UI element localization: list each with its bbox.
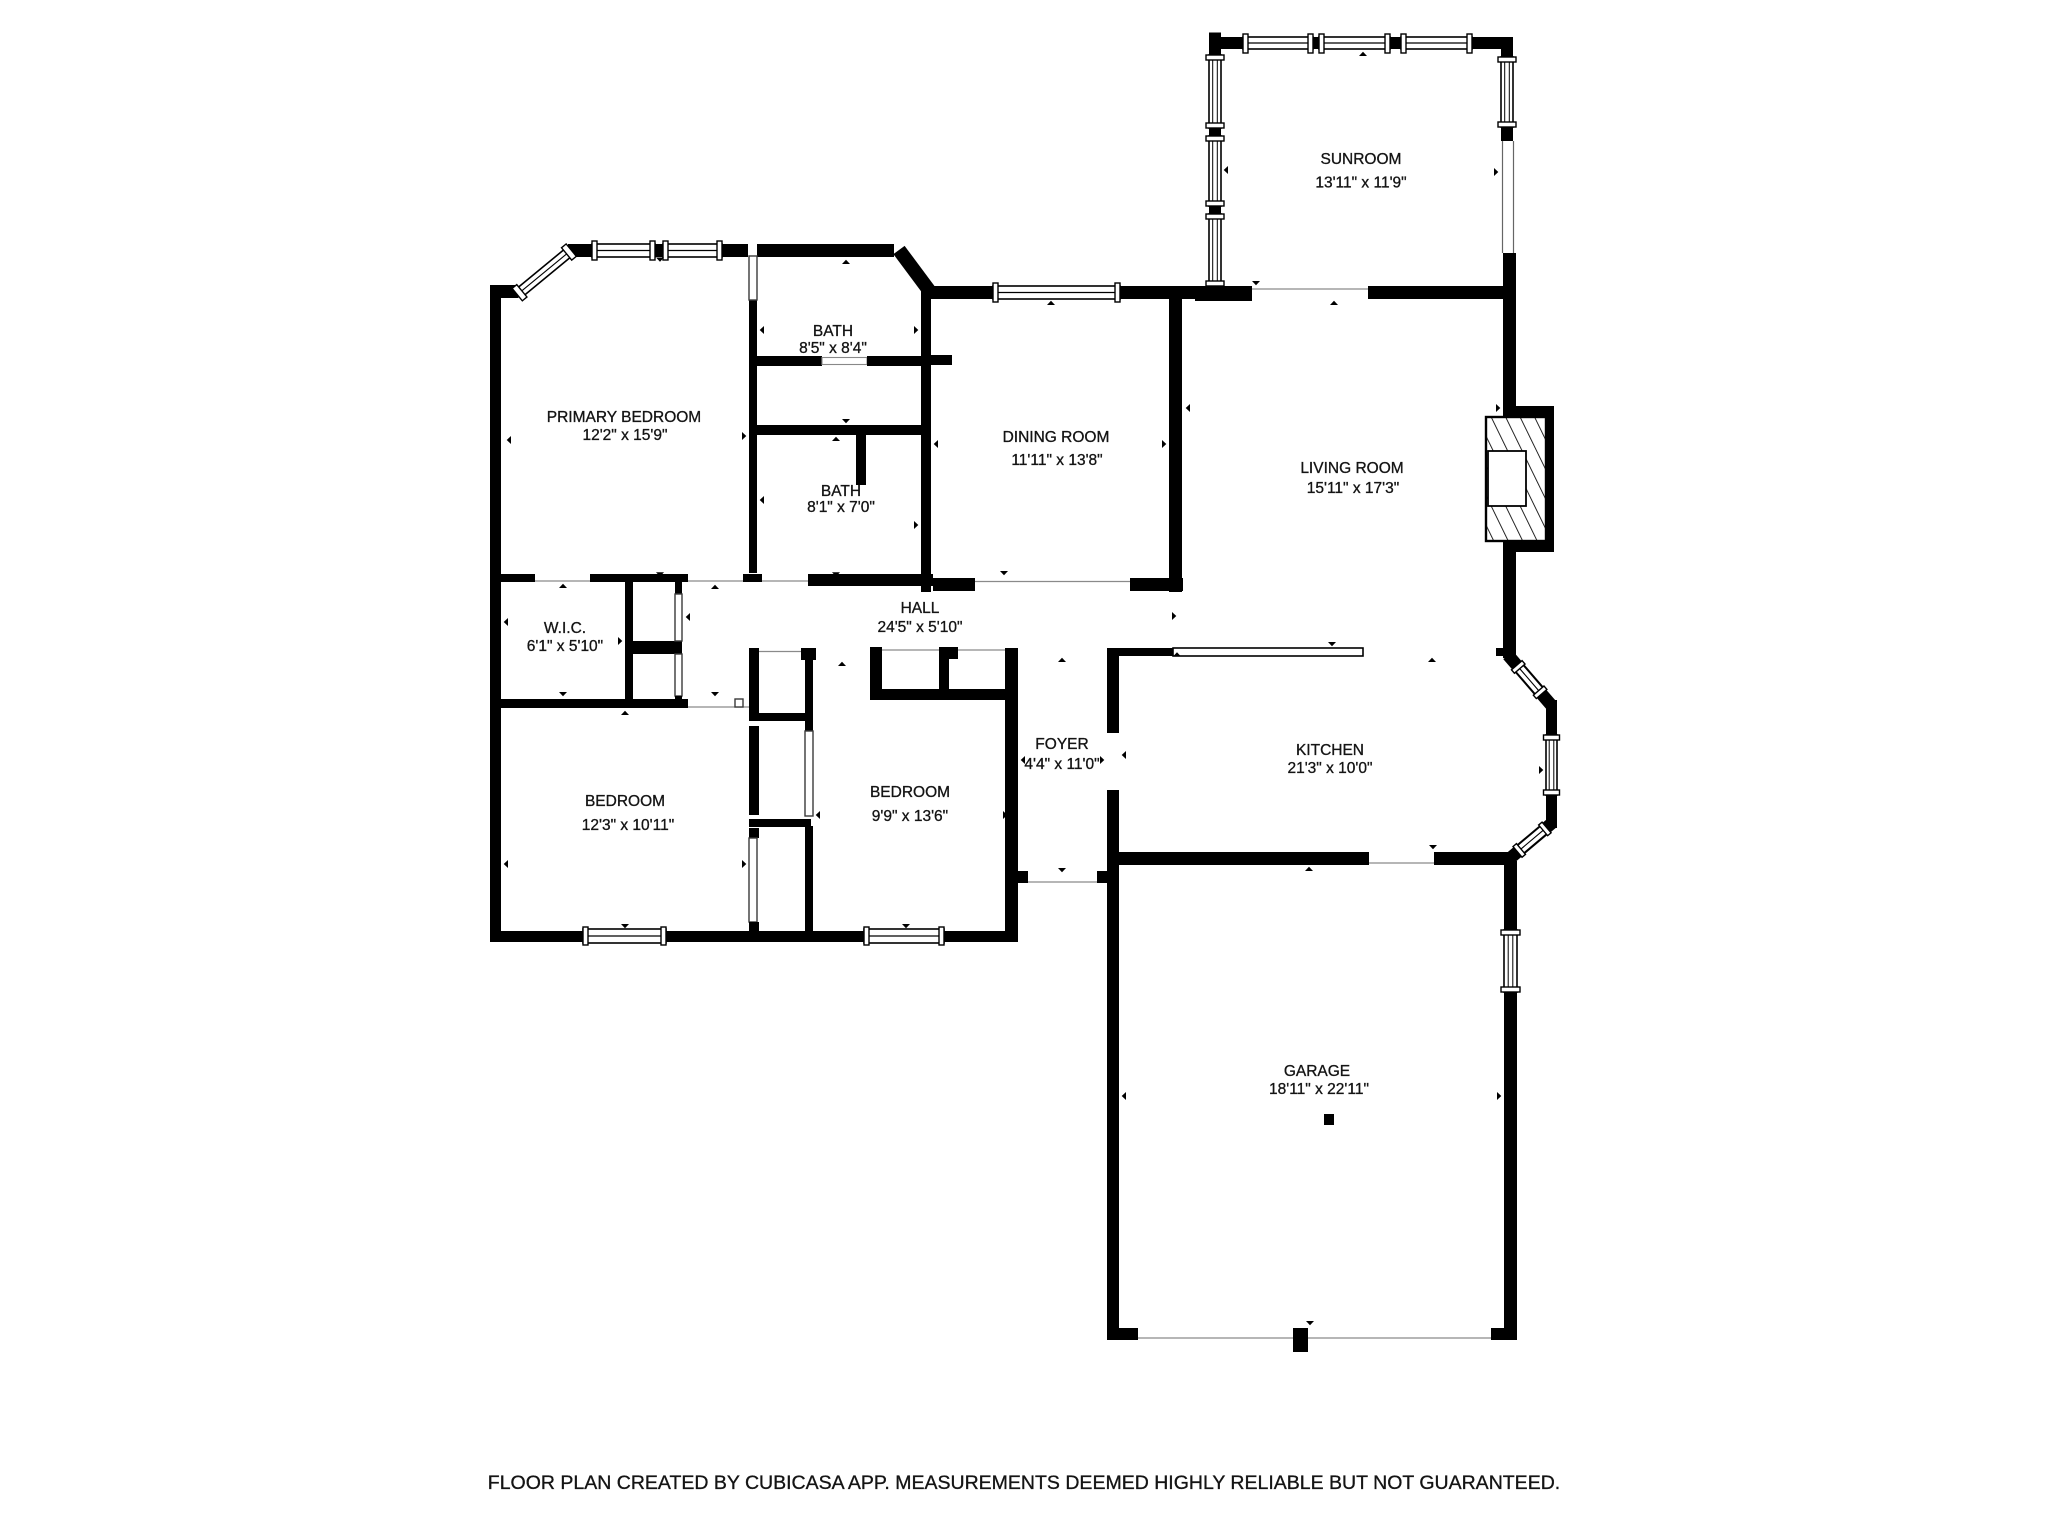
svg-text:KITCHEN: KITCHEN xyxy=(1296,742,1364,759)
svg-text:11'11" x 13'8": 11'11" x 13'8" xyxy=(1011,452,1102,469)
svg-text:GARAGE: GARAGE xyxy=(1284,1063,1350,1080)
svg-text:DINING ROOM: DINING ROOM xyxy=(1003,429,1110,446)
svg-text:BEDROOM: BEDROOM xyxy=(870,784,950,801)
svg-text:4'4" x 11'0": 4'4" x 11'0" xyxy=(1024,756,1099,773)
svg-text:24'5" x 5'10": 24'5" x 5'10" xyxy=(877,619,962,636)
svg-text:PRIMARY BEDROOM: PRIMARY BEDROOM xyxy=(547,409,701,426)
svg-text:13'11" x 11'9": 13'11" x 11'9" xyxy=(1315,175,1406,192)
svg-text:18'11" x 22'11": 18'11" x 22'11" xyxy=(1269,1081,1369,1098)
svg-text:BEDROOM: BEDROOM xyxy=(585,793,665,810)
svg-text:LIVING ROOM: LIVING ROOM xyxy=(1300,460,1403,477)
svg-text:12'2" x 15'9": 12'2" x 15'9" xyxy=(582,427,667,444)
svg-text:6'1" x 5'10": 6'1" x 5'10" xyxy=(527,638,603,655)
svg-text:9'9" x 13'6": 9'9" x 13'6" xyxy=(872,808,948,825)
svg-text:12'3" x 10'11": 12'3" x 10'11" xyxy=(582,817,674,834)
svg-text:FOYER: FOYER xyxy=(1035,736,1088,753)
svg-text:8'5" x 8'4": 8'5" x 8'4" xyxy=(799,340,867,357)
svg-text:W.I.C.: W.I.C. xyxy=(544,620,586,637)
svg-text:BATH: BATH xyxy=(813,323,853,340)
svg-text:8'1" x 7'0": 8'1" x 7'0" xyxy=(807,499,875,516)
svg-text:FLOOR PLAN CREATED BY CUBICASA: FLOOR PLAN CREATED BY CUBICASA APP. MEAS… xyxy=(488,1472,1560,1494)
svg-text:BATH: BATH xyxy=(821,483,861,500)
svg-text:15'11" x 17'3": 15'11" x 17'3" xyxy=(1307,480,1399,497)
svg-text:SUNROOM: SUNROOM xyxy=(1321,151,1402,168)
svg-text:21'3" x 10'0": 21'3" x 10'0" xyxy=(1287,760,1372,777)
svg-text:HALL: HALL xyxy=(901,600,940,617)
